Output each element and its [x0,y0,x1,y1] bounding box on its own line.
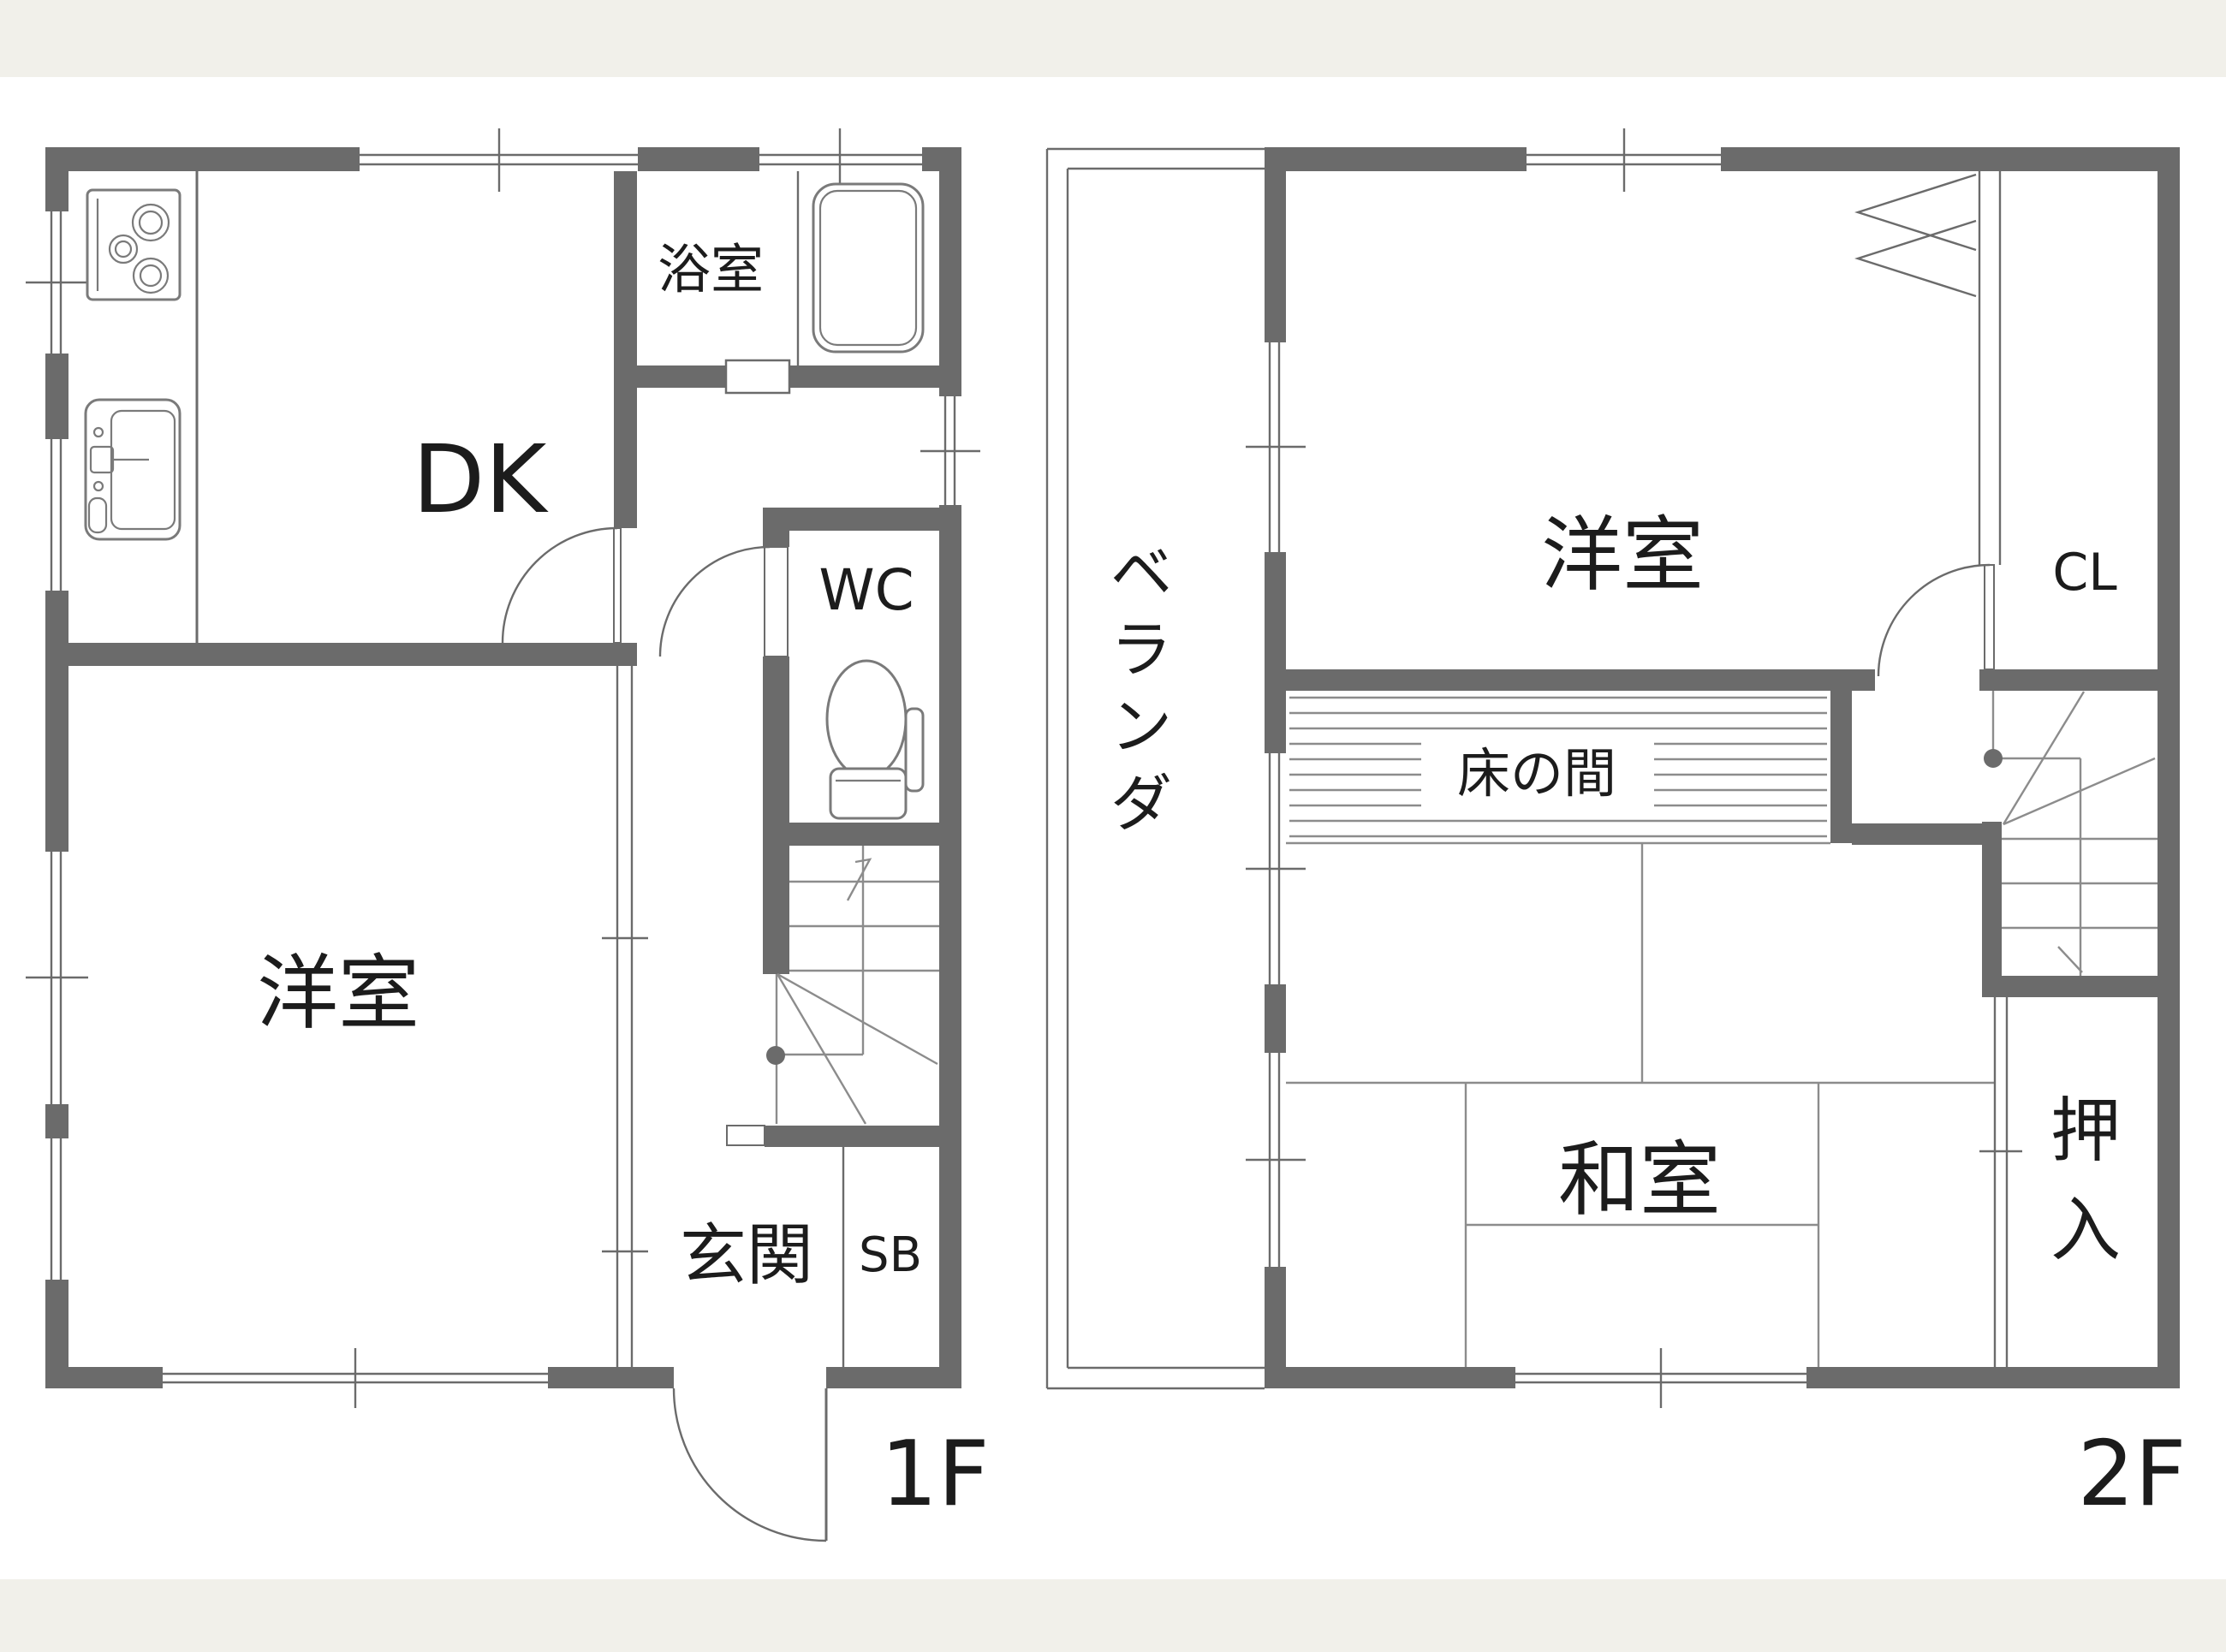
floor-label-1f: 1F [880,1422,989,1526]
room-label-veranda: ベ ラ ン ダ [1110,537,1172,840]
staircase-1f [766,846,939,1124]
svg-text:押: 押 [2050,1090,2121,1172]
sink-icon [86,400,180,539]
dk-door [503,528,621,643]
svg-text:ベ: ベ [1110,537,1172,609]
floorplan-canvas: DK 浴室 WC 洋室 玄関 SB 1F [0,0,2226,1652]
room-label-shoebox: SB [859,1227,922,1283]
room-label-bath: 浴室 [658,238,764,300]
room-label-tokonoma: 床の間 [1457,742,1616,805]
room-label-japanese-room: 和室 [1558,1133,1721,1227]
svg-text:ン: ン [1110,691,1172,763]
floorplan-page: DK 浴室 WC 洋室 玄関 SB 1F [0,0,2226,1652]
svg-text:ラ: ラ [1110,614,1172,686]
bathtub-icon [813,184,923,352]
floor2-walls [1265,147,2180,1388]
west-room-partition [602,666,648,1367]
room-label-entrance: 玄関 [680,1217,813,1294]
front-door [674,1388,826,1541]
floor1-plan: DK 浴室 WC 洋室 玄関 SB 1F [26,128,990,1541]
room-label-west-room-1f: 洋室 [257,947,420,1041]
toilet-icon [827,661,923,818]
closet-partition [1858,171,2000,565]
room-label-west-room-2f: 洋室 [1541,508,1704,603]
oshiire-partition [1979,997,2022,1367]
bottom-margin-band [0,1579,2226,1652]
floor-label-2f: 2F [2077,1422,2186,1526]
staircase-2f [1984,691,2158,976]
svg-text:入: 入 [2050,1190,2121,1271]
stove-icon [87,190,180,300]
bath-door [726,360,789,393]
floor2-plan: 洋室 CL 床の間 和室 ベ ラ ン ダ 押 入 2F [1047,128,2187,1526]
entrance-inner-door [727,1126,765,1145]
west-room-2f-door [1878,565,1994,676]
top-margin-band [0,0,2226,77]
wc-door [660,547,788,657]
tatami-lines [1286,843,1995,1367]
room-label-wc: WC [818,557,914,623]
svg-text:ダ: ダ [1110,768,1172,840]
room-label-closet: CL [2052,543,2117,603]
room-label-oshiire: 押 入 [2050,1090,2121,1271]
room-label-dk: DK [413,425,550,534]
